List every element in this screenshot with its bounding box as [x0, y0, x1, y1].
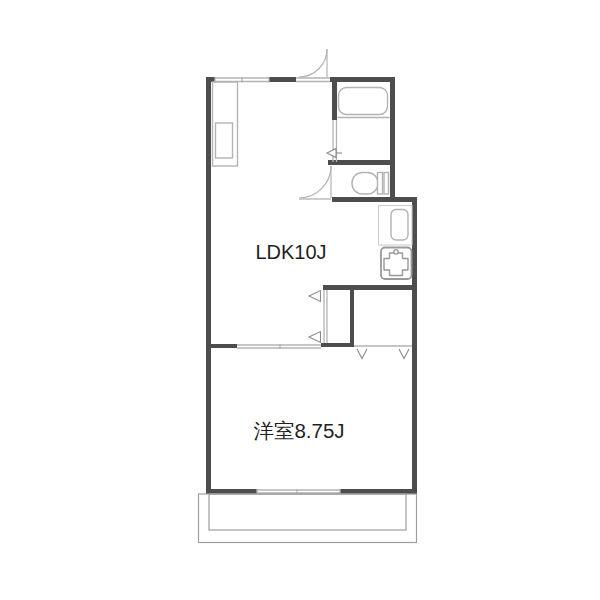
wall-segment	[330, 77, 395, 82]
wall-segment	[323, 285, 417, 290]
room-label-ldk: LDK10J	[255, 241, 326, 263]
wall-segment	[206, 489, 257, 494]
wall-segment	[321, 343, 354, 347]
wall-segment	[412, 197, 417, 494]
closet-opening-marker-right	[399, 349, 409, 359]
bathtub-icon	[338, 88, 390, 118]
balcony	[199, 494, 417, 543]
wall-segment	[340, 489, 417, 494]
closet-door-marker-top	[309, 291, 321, 302]
toilet-icon	[352, 173, 389, 195]
wall-segment	[206, 344, 237, 348]
wall-segment	[390, 77, 395, 202]
storage-cabinet	[213, 82, 238, 166]
floor-plan-canvas: LDK10J 洋室8.75J	[0, 0, 600, 600]
wall-segment	[328, 160, 395, 165]
wall-segment	[332, 77, 337, 120]
entrance-door	[296, 49, 330, 82]
water-heater-icon	[379, 206, 413, 246]
kitchen-sink-icon	[381, 248, 412, 280]
wall-segment	[206, 77, 211, 494]
wall-segment	[350, 290, 354, 347]
closet-opening-marker-left	[357, 349, 367, 359]
closet-door	[324, 290, 327, 343]
toilet-door	[299, 166, 331, 199]
sliding-door	[237, 344, 321, 349]
washroom-door-marker	[327, 149, 342, 158]
floor-plan: LDK10J 洋室8.75J	[0, 0, 600, 600]
wall-segment	[332, 197, 417, 202]
room-label-bedroom: 洋室8.75J	[253, 419, 344, 442]
closet-door-marker-bottom	[309, 332, 321, 343]
wall-segment	[269, 77, 296, 82]
bottom-window	[257, 489, 340, 494]
